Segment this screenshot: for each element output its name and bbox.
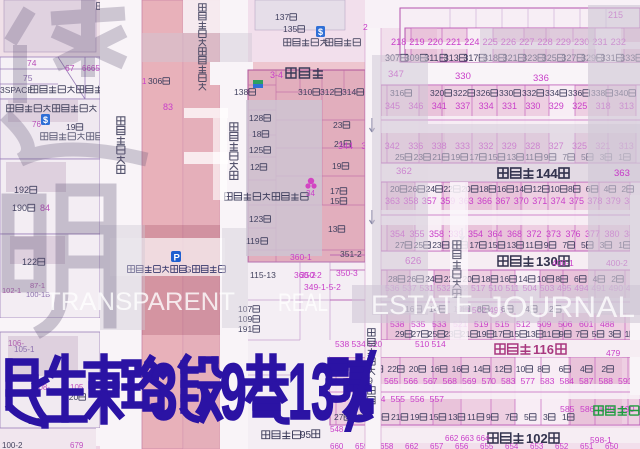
svg-text:570: 570 — [482, 376, 497, 386]
svg-text:313: 313 — [444, 53, 459, 63]
svg-text:651: 651 — [580, 442, 594, 449]
svg-text:219: 219 — [409, 37, 424, 47]
svg-text:JOURNAL: JOURNAL — [487, 291, 635, 324]
svg-text:334: 334 — [545, 88, 559, 98]
svg-text:310: 310 — [298, 87, 312, 97]
svg-text:144: 144 — [536, 166, 558, 181]
svg-text:P: P — [174, 253, 181, 264]
svg-text:366: 366 — [477, 196, 492, 206]
svg-text:4: 4 — [580, 364, 585, 374]
svg-text:15: 15 — [488, 240, 498, 250]
svg-text:18: 18 — [252, 129, 262, 139]
svg-text:10: 10 — [516, 364, 526, 374]
svg-text:330: 330 — [525, 101, 540, 111]
svg-text:555: 555 — [391, 394, 406, 404]
svg-text:34: 34 — [306, 189, 315, 198]
svg-text:125: 125 — [249, 145, 263, 155]
svg-text:363: 363 — [614, 168, 630, 179]
svg-text:368: 368 — [507, 229, 522, 239]
svg-text:569: 569 — [462, 376, 477, 386]
svg-text:337: 337 — [455, 101, 470, 111]
svg-text:128: 128 — [249, 113, 263, 123]
svg-text:330: 330 — [455, 71, 471, 82]
svg-text:8: 8 — [568, 184, 573, 194]
svg-text:16: 16 — [430, 364, 440, 374]
svg-text:360-1: 360-1 — [290, 252, 312, 262]
svg-text:565: 565 — [384, 376, 399, 386]
svg-text:9: 9 — [544, 240, 549, 250]
svg-text:1: 1 — [562, 412, 567, 422]
svg-text:$: $ — [43, 115, 48, 125]
svg-text:23: 23 — [432, 240, 442, 250]
svg-text:5: 5 — [524, 412, 529, 422]
svg-text:13: 13 — [448, 412, 458, 422]
svg-text:358: 358 — [429, 229, 444, 239]
svg-text:17: 17 — [330, 186, 340, 196]
svg-text:19: 19 — [477, 329, 487, 339]
svg-text:137: 137 — [275, 12, 289, 22]
svg-text:100-2: 100-2 — [2, 441, 23, 449]
svg-text:13: 13 — [507, 240, 517, 250]
svg-text:5: 5 — [581, 240, 586, 250]
svg-text:330: 330 — [499, 88, 513, 98]
svg-text:1: 1 — [625, 329, 630, 339]
svg-text:11: 11 — [543, 329, 552, 339]
svg-text:14: 14 — [473, 364, 483, 374]
svg-text:74: 74 — [27, 58, 37, 68]
svg-text:138: 138 — [234, 87, 248, 97]
svg-text:312: 312 — [320, 87, 334, 97]
svg-text:11: 11 — [467, 412, 476, 422]
svg-text:12: 12 — [494, 364, 504, 374]
svg-text:3: 3 — [608, 329, 613, 339]
svg-text:115-13: 115-13 — [250, 270, 276, 280]
svg-text:583: 583 — [501, 376, 516, 386]
svg-text:658: 658 — [380, 442, 394, 449]
svg-text:105-1: 105-1 — [14, 345, 35, 354]
svg-text:6: 6 — [559, 364, 564, 374]
svg-text:510 514: 510 514 — [415, 339, 446, 349]
svg-text:10: 10 — [550, 184, 560, 194]
svg-text:13: 13 — [328, 224, 338, 234]
svg-text:336: 336 — [533, 73, 549, 84]
svg-text:344: 344 — [338, 141, 353, 151]
svg-text:367: 367 — [495, 196, 510, 206]
svg-text:12: 12 — [532, 184, 542, 194]
svg-text:374: 374 — [551, 196, 566, 206]
svg-text:556: 556 — [410, 394, 425, 404]
svg-text:364: 364 — [488, 229, 503, 239]
svg-text:588: 588 — [599, 376, 614, 386]
svg-text:662 663 664: 662 663 664 — [445, 434, 490, 443]
svg-text:21: 21 — [391, 412, 401, 422]
svg-text:341: 341 — [432, 101, 447, 111]
svg-text:679: 679 — [70, 441, 84, 449]
svg-text:3: 3 — [150, 348, 178, 437]
svg-text:7: 7 — [562, 240, 567, 250]
svg-text:9: 9 — [559, 329, 564, 339]
svg-text:376: 376 — [566, 229, 581, 239]
svg-text:320: 320 — [430, 88, 444, 98]
svg-text:325: 325 — [572, 101, 587, 111]
svg-text:657: 657 — [430, 442, 444, 449]
svg-text:18: 18 — [479, 184, 489, 194]
svg-text:17: 17 — [493, 329, 503, 339]
svg-text:12: 12 — [250, 162, 260, 172]
svg-text:306: 306 — [148, 76, 162, 86]
svg-text:360-2: 360-2 — [294, 270, 316, 280]
svg-text:ESTATE: ESTATE — [371, 290, 473, 320]
svg-text:568: 568 — [443, 376, 458, 386]
svg-text:331: 331 — [502, 101, 517, 111]
svg-text:19: 19 — [332, 161, 342, 171]
svg-text:350-3: 350-3 — [336, 268, 358, 278]
svg-text:9: 9 — [220, 346, 247, 436]
svg-text:TRANSPARENT: TRANSPARENT — [45, 288, 235, 316]
svg-text:25: 25 — [428, 329, 438, 339]
svg-text:479: 479 — [606, 348, 620, 358]
svg-text:3-4: 3-4 — [270, 70, 283, 80]
svg-text:REAL: REAL — [278, 289, 328, 317]
svg-text:27: 27 — [411, 329, 421, 339]
svg-text:102: 102 — [526, 431, 548, 446]
svg-text:7: 7 — [575, 329, 580, 339]
svg-text:375: 375 — [569, 196, 584, 206]
svg-text:584: 584 — [560, 376, 575, 386]
svg-text:317: 317 — [463, 53, 478, 63]
svg-text:15: 15 — [429, 412, 439, 422]
svg-text:29: 29 — [395, 329, 405, 339]
svg-text:1: 1 — [142, 77, 147, 86]
svg-text:577: 577 — [521, 376, 536, 386]
svg-text:19: 19 — [66, 122, 76, 132]
svg-text:15: 15 — [510, 329, 520, 339]
svg-text:329: 329 — [549, 101, 564, 111]
svg-text:371: 371 — [532, 196, 547, 206]
svg-text:567: 567 — [423, 376, 438, 386]
svg-text:586: 586 — [580, 404, 595, 414]
svg-text:135: 135 — [283, 24, 297, 34]
svg-text:373: 373 — [546, 229, 561, 239]
svg-text:400-1: 400-1 — [552, 258, 574, 268]
svg-text:656: 656 — [455, 442, 469, 449]
svg-text:$: $ — [318, 27, 323, 37]
svg-text:7: 7 — [505, 412, 510, 422]
svg-text:370: 370 — [514, 196, 529, 206]
svg-text:220: 220 — [428, 37, 443, 47]
svg-text:3: 3 — [543, 412, 548, 422]
svg-text:372: 372 — [527, 229, 542, 239]
svg-text:322: 322 — [453, 88, 467, 98]
svg-text:11: 11 — [525, 240, 534, 250]
svg-text:332: 332 — [522, 88, 536, 98]
svg-text:8: 8 — [537, 364, 542, 374]
svg-text:27: 27 — [334, 412, 344, 422]
svg-text:22: 22 — [387, 364, 397, 374]
svg-text:83: 83 — [163, 102, 173, 112]
svg-text:13: 13 — [526, 329, 536, 339]
svg-text:20: 20 — [409, 364, 419, 374]
svg-text:2: 2 — [601, 364, 606, 374]
svg-text:326: 326 — [476, 88, 490, 98]
svg-text:218: 218 — [391, 37, 406, 47]
svg-text:15: 15 — [330, 196, 340, 206]
svg-text:314: 314 — [342, 87, 356, 97]
svg-text:587: 587 — [579, 376, 594, 386]
svg-text:5: 5 — [592, 329, 597, 339]
svg-text:660: 660 — [330, 442, 344, 449]
svg-text:583: 583 — [540, 376, 555, 386]
svg-text:224: 224 — [464, 37, 479, 47]
svg-text:13: 13 — [288, 346, 334, 436]
svg-text:9: 9 — [486, 412, 491, 422]
svg-text:336: 336 — [568, 88, 582, 98]
svg-text:2: 2 — [363, 22, 368, 32]
svg-text:566: 566 — [404, 376, 419, 386]
svg-text:334: 334 — [479, 101, 494, 111]
svg-text:16: 16 — [497, 184, 507, 194]
svg-text:G: G — [185, 265, 192, 275]
svg-text:650: 650 — [605, 442, 619, 449]
svg-text:17: 17 — [469, 240, 479, 250]
svg-text:354: 354 — [468, 229, 483, 239]
svg-text:123: 123 — [249, 214, 263, 224]
svg-text:23: 23 — [333, 120, 343, 130]
svg-text:221: 221 — [446, 37, 461, 47]
svg-text:557: 557 — [430, 394, 445, 404]
svg-text:116: 116 — [533, 342, 554, 357]
svg-text:19: 19 — [410, 412, 420, 422]
svg-text:76: 76 — [32, 120, 41, 129]
svg-text:119: 119 — [246, 236, 260, 246]
svg-text:14: 14 — [515, 184, 525, 194]
svg-text:16: 16 — [452, 364, 462, 374]
svg-text:662: 662 — [405, 442, 419, 449]
svg-text:351-2: 351-2 — [340, 249, 362, 259]
